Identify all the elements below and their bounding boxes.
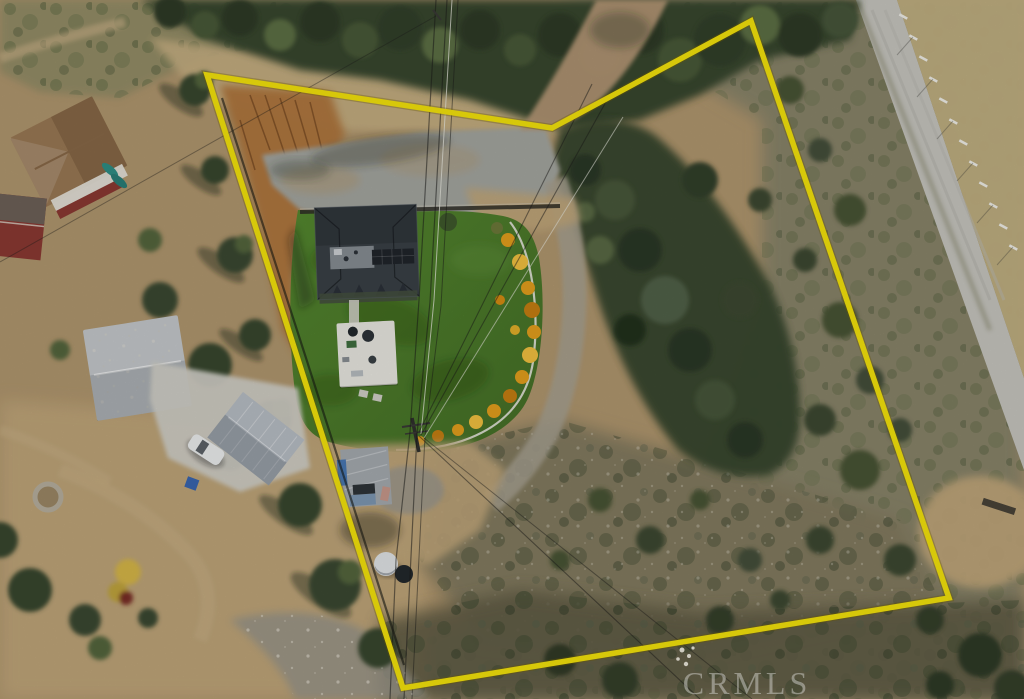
aerial-photo-canvas: CRMLS	[0, 0, 1024, 699]
aerial-photo: CRMLS	[0, 0, 1024, 699]
photo-grain	[0, 0, 1024, 699]
